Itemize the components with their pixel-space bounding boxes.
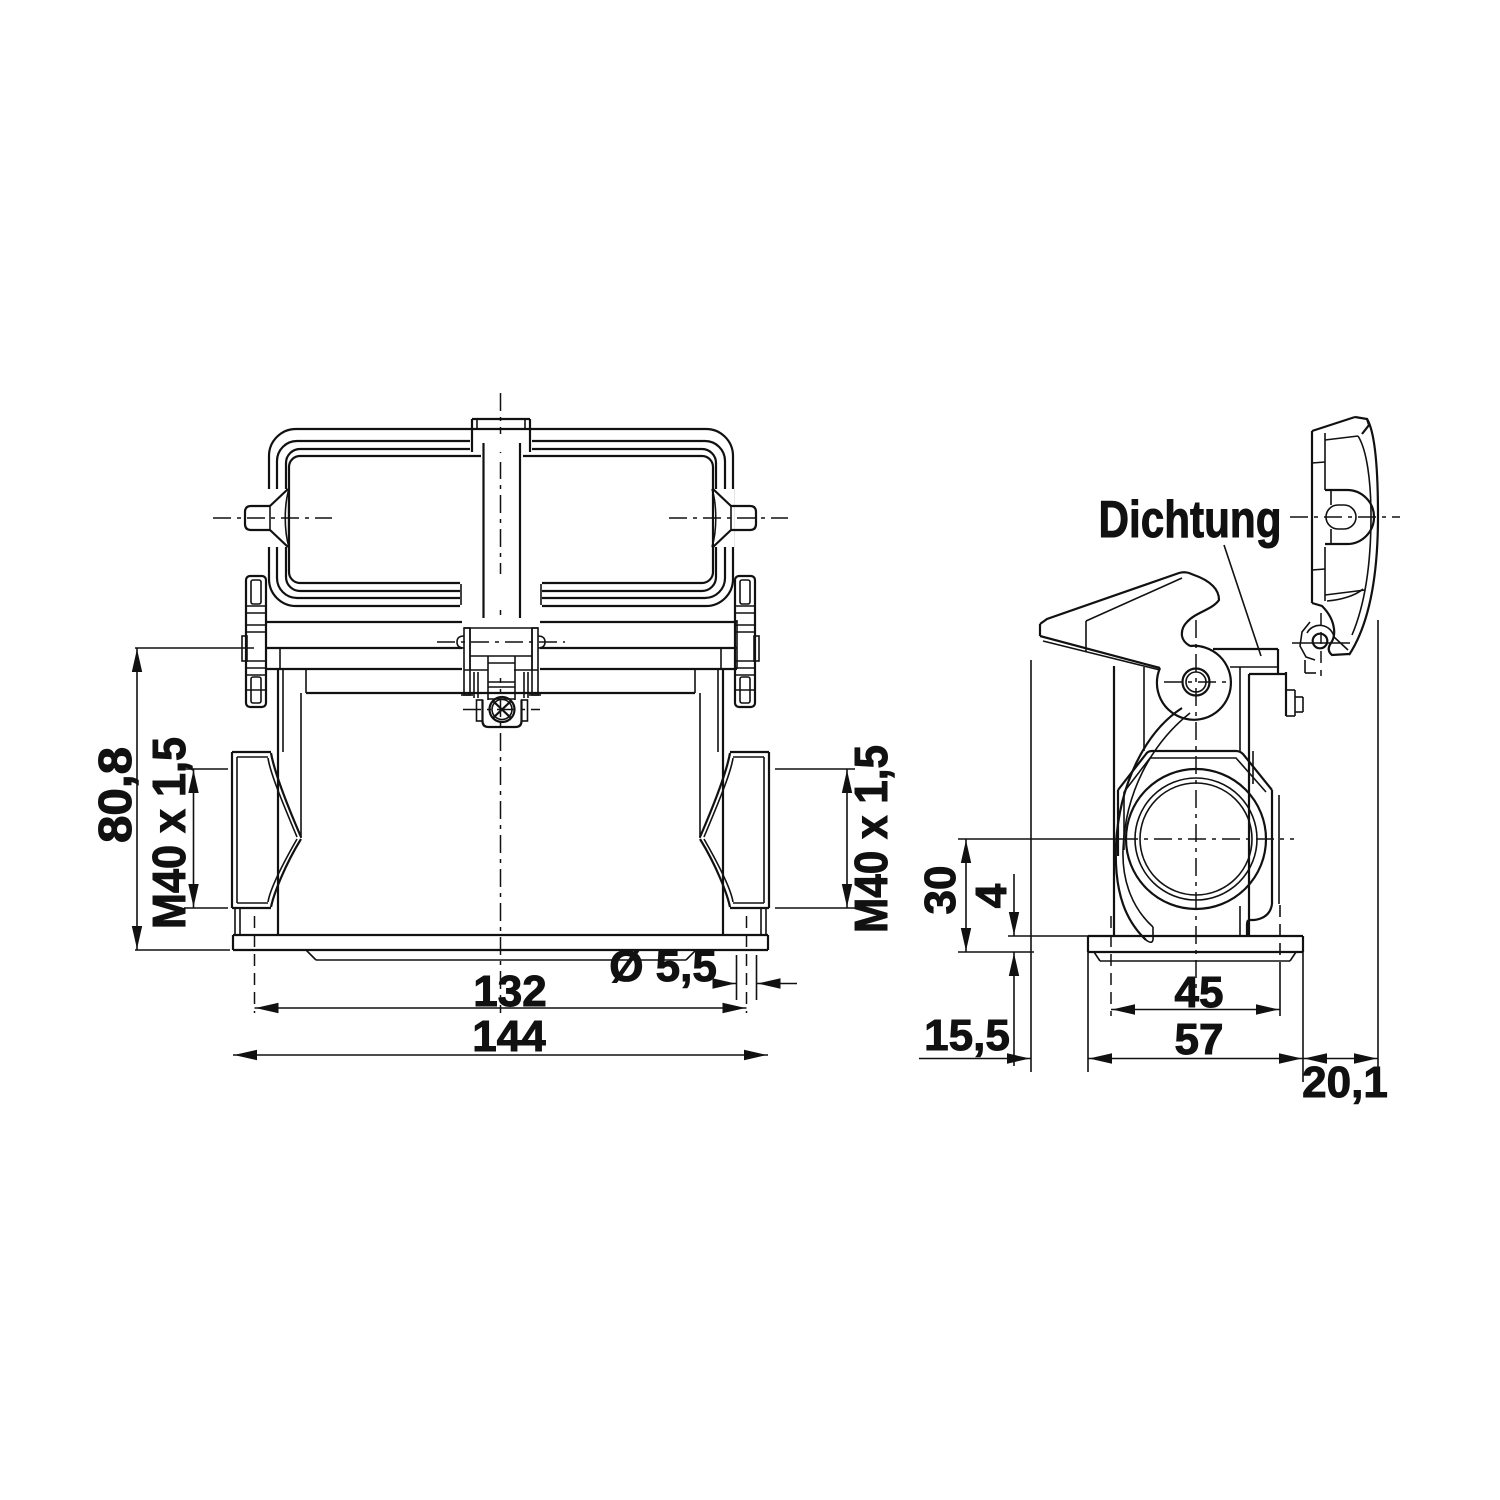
svg-text:20,1: 20,1 <box>1302 1058 1388 1107</box>
svg-text:15,5: 15,5 <box>924 1011 1010 1060</box>
svg-text:30: 30 <box>916 866 965 915</box>
svg-text:132: 132 <box>473 967 546 1016</box>
svg-text:80,8: 80,8 <box>89 747 141 843</box>
svg-text:M40 x 1,5: M40 x 1,5 <box>845 745 897 933</box>
svg-text:M40 x 1,5: M40 x 1,5 <box>143 737 195 929</box>
svg-text:4: 4 <box>967 883 1016 908</box>
svg-text:Dichtung: Dichtung <box>1099 491 1282 549</box>
svg-text:Ø 5,5: Ø 5,5 <box>609 942 717 991</box>
svg-text:57: 57 <box>1175 1015 1224 1064</box>
svg-text:144: 144 <box>472 1012 546 1061</box>
svg-text:45: 45 <box>1175 968 1224 1017</box>
